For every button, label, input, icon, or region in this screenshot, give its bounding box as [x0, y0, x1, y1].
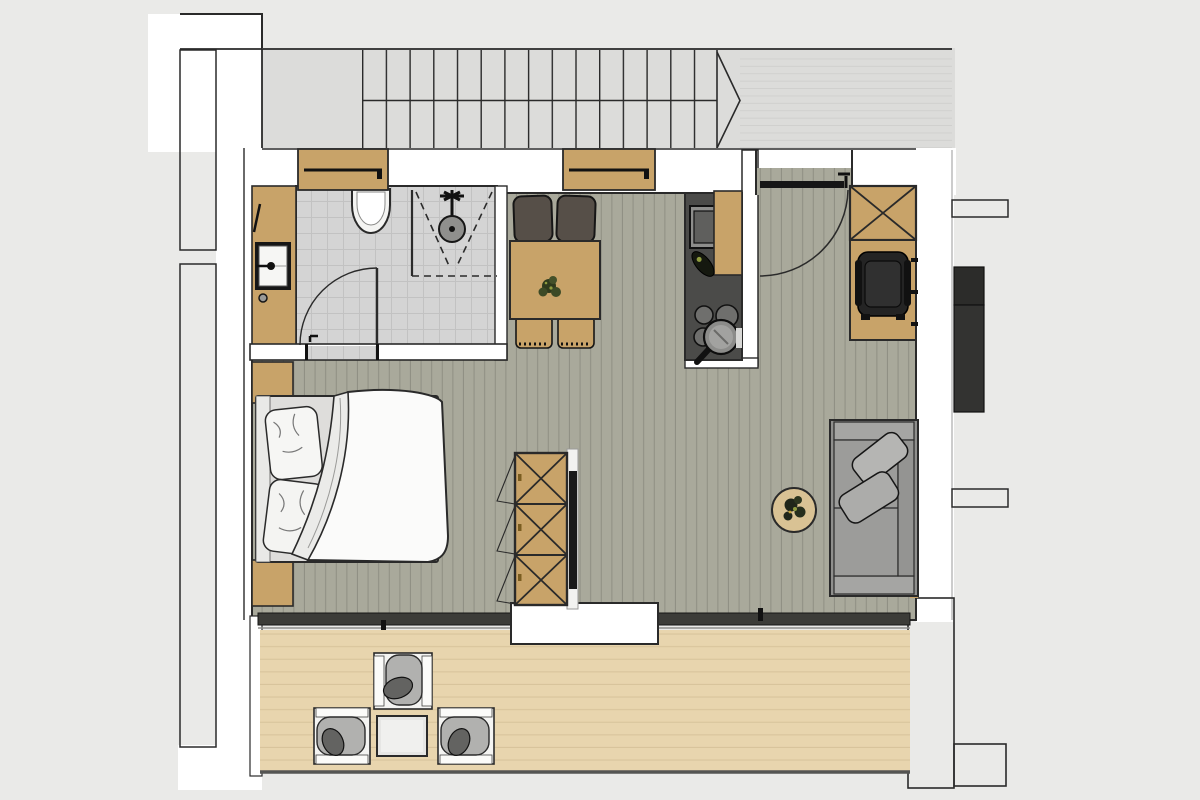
wall-right-band	[916, 148, 954, 622]
sofa	[830, 420, 918, 596]
floor-drain	[259, 294, 267, 302]
coat-niche-left	[298, 149, 388, 190]
wall-window-pier	[511, 603, 658, 644]
office-chair	[855, 252, 911, 320]
balcony-armchair-left	[314, 708, 370, 764]
dining-chair-top-left	[513, 195, 553, 242]
bathroom-tile-floor	[296, 186, 497, 346]
dining-chair-bottom-right	[558, 316, 594, 348]
side-table	[772, 488, 816, 532]
kitchen	[685, 191, 742, 362]
kitchen-sink-basin	[694, 211, 714, 243]
shaft-upper	[954, 267, 984, 305]
counter-towel	[736, 328, 742, 348]
sofa-armrest-top	[834, 422, 914, 440]
balcony-armchair-right	[438, 708, 494, 764]
tv-panel	[569, 471, 577, 589]
nightstand-bottom	[252, 560, 293, 606]
landing-planks	[740, 52, 952, 148]
coat-niche-right	[563, 149, 655, 190]
floor-plan-drawing	[0, 0, 1200, 800]
rail-bracket	[644, 170, 649, 179]
shaft-lower	[954, 305, 984, 412]
entrance-door-leaf	[760, 181, 844, 188]
balcony-coffee-table	[377, 716, 427, 756]
wall-bottom-left	[178, 745, 262, 790]
stairwell	[180, 48, 955, 150]
bathroom-door-opening	[307, 346, 377, 359]
dining-chair-bottom-left	[516, 316, 552, 348]
dining-chair-top-right	[556, 195, 596, 242]
floor-plan-canvas	[0, 0, 1200, 800]
wall-bathroom-right	[495, 186, 507, 360]
pillow-top	[264, 406, 323, 481]
vanity-sink	[255, 242, 291, 290]
balcony-armchair-top	[374, 653, 432, 709]
rail-bracket	[377, 170, 382, 179]
hall-wardrobe	[850, 186, 916, 240]
sofa-armrest-bottom	[834, 576, 914, 594]
cutting-board	[714, 191, 742, 275]
window-handle-right	[758, 608, 763, 621]
